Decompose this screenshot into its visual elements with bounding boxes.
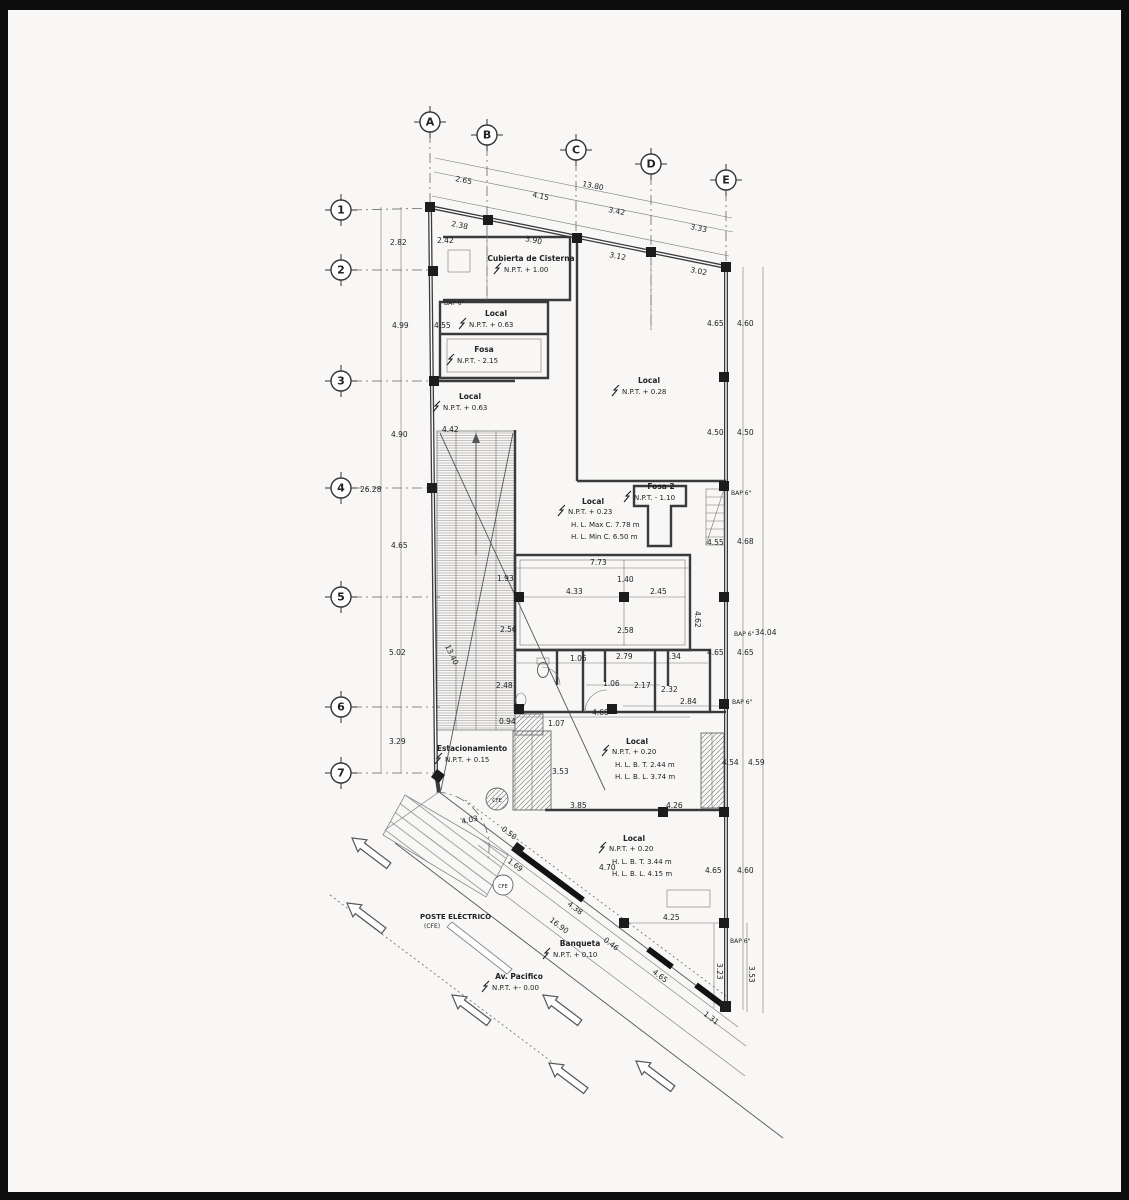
dim-label: 4.62 [693,611,702,628]
room-title: Fosa [474,345,494,354]
dim-label: 4.90 [391,430,408,439]
dim-label: 1.40 [617,575,634,584]
level-marker-icon [624,491,631,502]
wc-fixture [538,663,549,678]
grid-bubble-row-7: 7 [325,757,357,789]
grid-bubble-label: 3 [337,375,345,388]
dim-label: 34.04 [755,628,777,637]
architectural-plan-screenshot: 13.80 2.65 4.15 3.42 3.33 2.38 3.90 3.12… [0,0,1129,1200]
dim-label: 0.94 [499,717,516,726]
dim-label: 4.03 [461,814,479,826]
grid-bubble-label: C [572,144,580,157]
room-height-note: H. L. B. T. 3.44 m [612,858,672,866]
gate-segment [696,985,724,1006]
grid-bubble-label: 1 [337,204,345,217]
level-marker-icon [543,948,550,959]
room-title: Local [623,834,645,843]
dim-label: 4.59 [748,758,765,767]
dim-label: 5.02 [389,648,406,657]
grid-bubble-row-4: 4 [325,472,357,504]
floor-plan-drawing: 13.80 2.65 4.15 3.42 3.33 2.38 3.90 3.12… [0,0,1129,1200]
grid-bubble-label: 7 [337,767,345,780]
hatch-zones [437,431,724,810]
room-level: N.P.T. + 0.10 [553,951,597,959]
room-level: N.P.T. + 1.00 [504,266,548,274]
traffic-arrow [538,989,584,1029]
dim-label: 4.26 [666,801,683,810]
grid-bubble-label: D [646,158,655,171]
gate-segment [648,949,672,967]
level-marker-icon [482,981,489,992]
room-level: N.P.T. +- 0.00 [492,984,539,992]
dim-label: 2.56 [500,625,517,634]
grid-bubble-label: E [722,174,730,187]
room-title: Banqueta [560,939,601,948]
traffic-arrow [347,832,393,872]
grid-bubble-col-c: C [560,134,592,166]
grid-bubble-col-b: B [471,119,503,151]
grid-bubble-label: 5 [337,591,345,604]
dim-label: 4.38 [566,899,585,916]
grid-bubbles: A B C D E 1 2 3 4 [325,106,742,789]
room-label-local-2: Local N.P.T. + 0.63 [433,392,487,412]
dim-label: 1.07 [548,719,565,728]
dim-label: 2.79 [616,652,633,661]
dim-label: 4.65 [707,648,724,657]
level-marker-icon [494,263,501,274]
room-label-fosa2: Fosa 2 N.P.T. - 1.10 [624,482,675,502]
room-label-estacionamiento: Estacionamiento N.P.T. + 0.15 [435,744,507,764]
room-title: Local [626,737,648,746]
dim-label: 4.60 [737,866,754,875]
dim-label: 16.90 [548,915,571,935]
grid-bubble-col-a: A [414,106,446,138]
room-height-note: H. L. B. L. 3.74 m [615,773,675,781]
dim-label: 3.85 [570,801,587,810]
dim-label: 1.06 [570,654,587,663]
dim-label: 1.93 [497,574,514,583]
room-title: Cubierta de Cisterna [487,254,574,263]
dim-label: 4.99 [392,321,409,330]
traffic-arrow [447,989,493,1029]
traffic-arrow [631,1055,677,1095]
level-marker-icon [558,505,565,516]
grid-bubble-label: B [483,129,491,142]
gate-segment [520,853,583,900]
right-stair-hatch [701,733,724,808]
dim-label: 4.25 [663,913,680,922]
traffic-arrow [342,897,388,937]
dim-label: 2.48 [496,681,513,690]
dim-label: 26.28 [360,485,382,494]
dim-label: 2.65 [455,174,473,186]
dim-label: 2.38 [451,219,469,231]
dim-label: 4.33 [566,587,583,596]
room-title: Fosa 2 [647,482,674,491]
room-level: N.P.T. - 2.15 [457,357,498,365]
grid-bubble-label: 2 [337,264,345,277]
grid-bubble-row-3: 3 [325,365,357,397]
room-height-note: H. L. Max C. 7.78 m [571,521,640,529]
dim-label: 3.53 [552,767,569,776]
dim-label: 4.65 [737,648,754,657]
grid-bubble-row-6: 6 [325,691,357,723]
dim-label: 13.80 [582,179,605,192]
grid-bubble-label: 6 [337,701,345,714]
dim-label: 3.53 [747,966,756,983]
traffic-arrow [544,1057,590,1097]
room-title: Local [459,392,481,401]
dim-label: 4.54 [722,758,739,767]
dim-label: 2.42 [437,236,454,245]
room-title: Local [582,497,604,506]
dim-label: 1.06 [603,679,620,688]
room-title: Estacionamiento [437,744,507,753]
dim-label: 3.33 [690,222,708,234]
room-height-note: H. L. B. L. 4.15 m [612,870,672,878]
room-title: Av. Pacifico [495,972,543,981]
room-label-av-pacifico: Av. Pacifico N.P.T. +- 0.00 [482,972,543,992]
room-label-local-1: Local N.P.T. + 0.63 [459,309,513,329]
dim-label: 2.58 [617,626,634,635]
dim-label: 4.42 [442,425,459,434]
bap-note: BAP 6" [444,300,465,307]
dim-label: 4.65 [391,541,408,550]
poste-electrico-label: POSTE ELÉCTRICO [420,912,491,921]
bap-note: BAP 6" [730,938,751,945]
room-level: N.P.T. + 0.20 [612,748,656,756]
dim-label: 1.69 [506,856,525,873]
dim-label: 3.12 [609,250,627,262]
cfe-label: CFE [498,884,508,890]
dim-label: 3.02 [690,265,708,277]
room-label-banqueta: Banqueta N.P.T. + 0.10 [543,939,600,959]
room-level: N.P.T. + 0.28 [622,388,666,396]
dim-label: 2.45 [650,587,667,596]
dim-label: 4.68 [737,537,754,546]
room-level: N.P.T. + 0.20 [609,845,653,853]
dim-label: 2.32 [661,685,678,694]
level-marker-icon [447,354,454,365]
dim-label: 4.50 [707,428,724,437]
dim-label: .34 [669,652,681,661]
dim-label: 3.23 [715,963,724,980]
dim-label: 3.42 [608,205,626,217]
grid-bubble-label: A [426,116,435,129]
bap-note: BAP 6" [732,699,753,706]
dim-label: 4.55 [434,321,451,330]
level-marker-icon [612,385,619,396]
room-title: Local [485,309,507,318]
poste-electrico-sub: (CFE) [424,923,440,930]
room-level: N.P.T. + 0.63 [469,321,513,329]
level-marker-icon [459,318,466,329]
dim-label: 4.60 [592,708,609,717]
room-label-local-central: Local N.P.T. + 0.23 H. L. Max C. 7.78 m … [558,497,640,541]
dimension-labels: 13.80 2.65 4.15 3.42 3.33 2.38 3.90 3.12… [360,174,777,1027]
dim-label: 7.73 [590,558,607,567]
grid-bubble-label: 4 [337,482,345,495]
dim-label: 0.50 [500,824,519,841]
grid-bubble-row-5: 5 [325,581,357,613]
level-marker-icon [602,745,609,756]
dim-label: 3.29 [389,737,406,746]
room-label-local-big: Local N.P.T. + 0.28 [612,376,666,396]
room-label-fosa: Fosa N.P.T. - 2.15 [447,345,498,365]
poste-electrico-shape [447,922,512,974]
dim-label: 4.60 [737,319,754,328]
cfe-label: CFE [492,798,502,804]
level-marker-icon [599,842,606,853]
room-level: N.P.T. + 0.23 [568,508,612,516]
dim-label: 3.90 [525,234,543,246]
room-height-note: H. L. B. T. 2.44 m [615,761,675,769]
grid-bubble-col-e: E [710,164,742,196]
dim-label: 2.82 [390,238,407,247]
grid-bubble-col-d: D [635,148,667,180]
dim-label: 4.65 [705,866,722,875]
dim-label: 4.15 [532,190,550,202]
room-level: N.P.T. + 0.15 [445,756,489,764]
room-level: N.P.T. + 0.63 [443,404,487,412]
dim-label: 2.84 [680,697,697,706]
dim-label: 2.17 [634,681,651,690]
room-label-local-a: Local N.P.T. + 0.20 H. L. B. T. 2.44 m H… [602,737,675,781]
room-title: Local [638,376,660,385]
grid-bubble-row-1: 1 [325,194,357,226]
room-height-note: H. L. Min C. 6.50 m [571,533,638,541]
dim-label: 4.65 [707,319,724,328]
dim-label: 4.55 [707,538,724,547]
room-label-cisterna: Cubierta de Cisterna N.P.T. + 1.00 [487,254,574,274]
grid-bubble-row-2: 2 [325,254,357,286]
room-level: N.P.T. - 1.10 [634,494,675,502]
bap-note: BAP 6" [731,490,752,497]
dim-label: 4.65 [651,967,670,984]
bap-note: BAP 6" [734,631,755,638]
dim-label: 4.50 [737,428,754,437]
